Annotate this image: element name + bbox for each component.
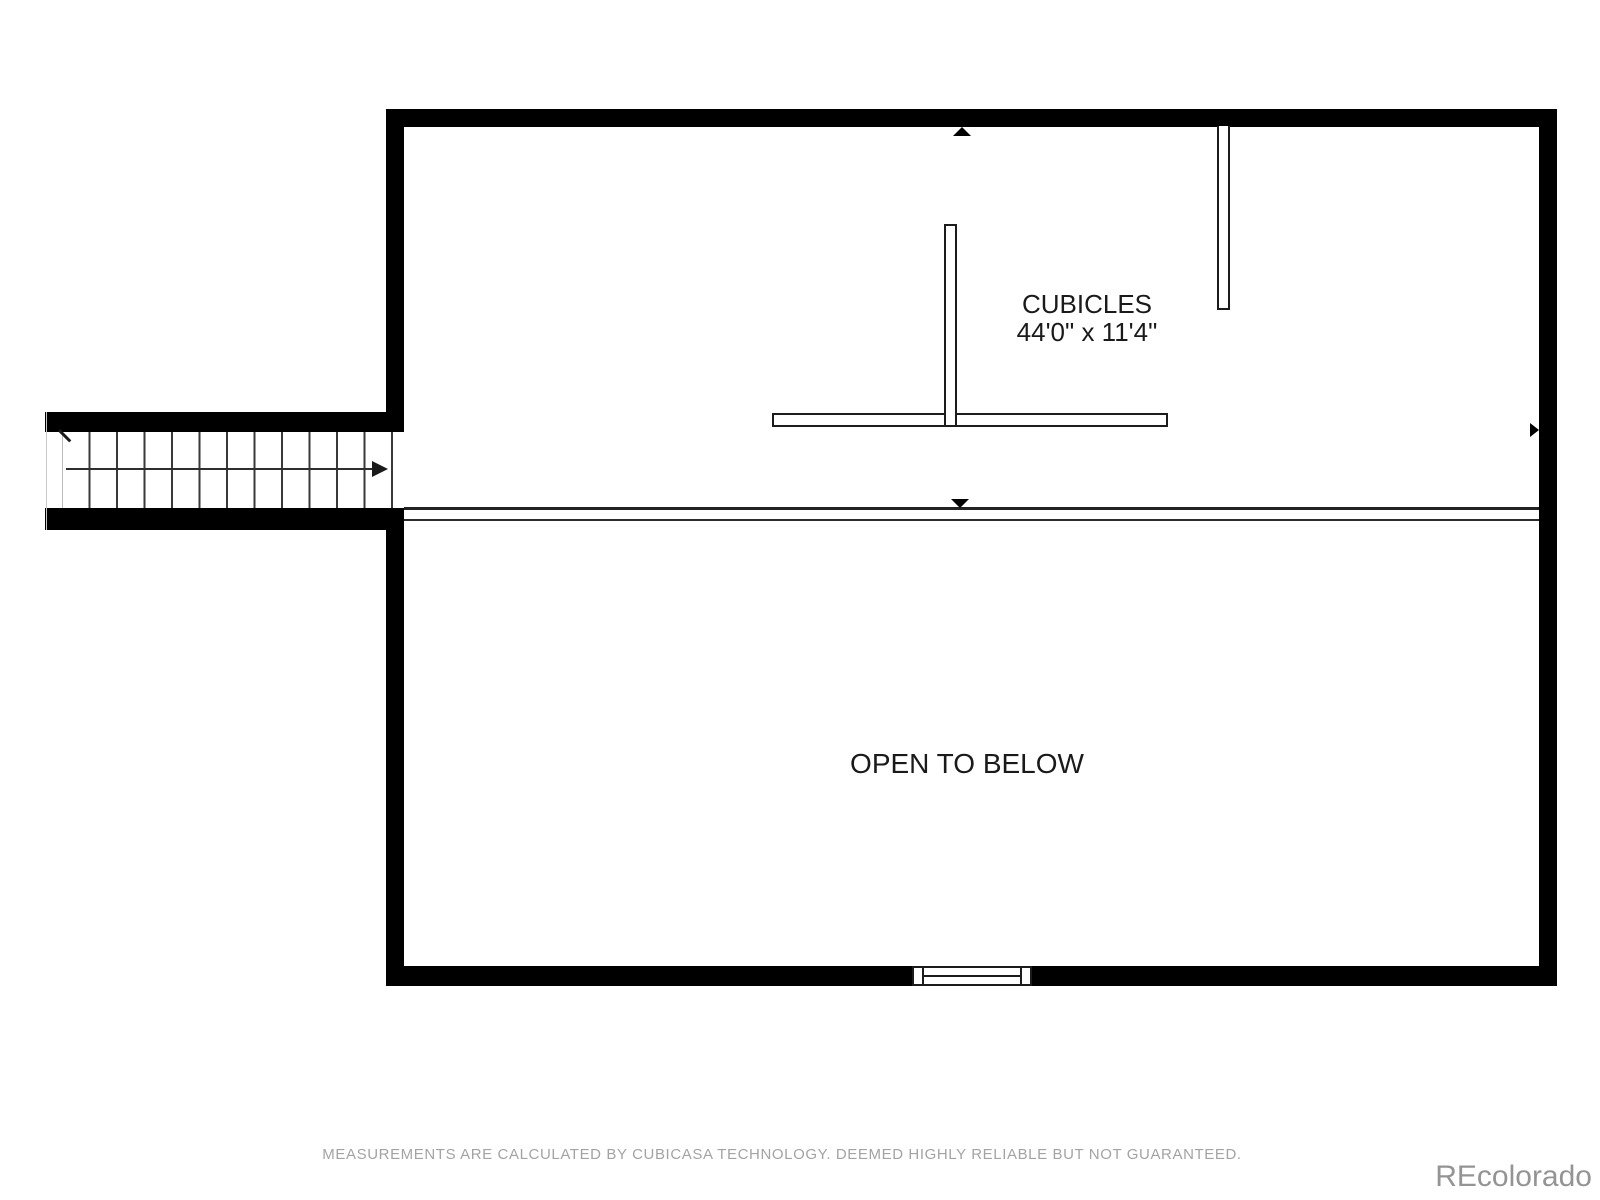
- mezzanine-edge-upper-line: [404, 507, 1539, 510]
- exterior-wall-right: [1539, 109, 1557, 986]
- marker-right-icon: [1530, 423, 1539, 437]
- partition-wall-right-vertical: [1217, 126, 1230, 310]
- window-symbol: [912, 966, 1032, 986]
- exterior-wall-left-lower-segment: [386, 508, 404, 986]
- room-name: CUBICLES: [1017, 290, 1158, 318]
- room-dimensions: 44'0" x 11'4": [1017, 318, 1158, 346]
- watermark-text: REcolorado: [1435, 1160, 1592, 1194]
- window-jamb-right: [1020, 968, 1022, 984]
- exterior-wall-left-upper-segment: [386, 109, 404, 432]
- marker-down-icon: [951, 499, 969, 508]
- marker-up-icon: [953, 127, 971, 136]
- stair-wall-bottom: [45, 508, 404, 530]
- window-glass-line: [924, 975, 1020, 977]
- stair-direction-line: [66, 468, 374, 470]
- floorplan-canvas: CUBICLES 44'0" x 11'4" OPEN TO BELOW MEA…: [0, 0, 1600, 1200]
- partition-wall-horizontal: [772, 413, 1168, 427]
- partition-wall-center-vertical: [944, 224, 957, 425]
- stair-wall-top: [45, 412, 404, 432]
- mezzanine-edge-lower-line: [404, 519, 1539, 521]
- stair-treads: [62, 432, 393, 508]
- open-to-below-label: OPEN TO BELOW: [850, 748, 1084, 780]
- exterior-wall-bottom-right-segment: [1032, 966, 1557, 986]
- stair-direction-arrow-icon: [372, 461, 388, 477]
- exterior-wall-bottom-left-segment: [386, 966, 912, 986]
- exterior-wall-top: [386, 109, 1557, 127]
- room-label-cubicles: CUBICLES 44'0" x 11'4": [1017, 290, 1158, 346]
- disclaimer-text: MEASUREMENTS ARE CALCULATED BY CUBICASA …: [322, 1146, 1241, 1163]
- stair-left-edge-line: [46, 412, 47, 530]
